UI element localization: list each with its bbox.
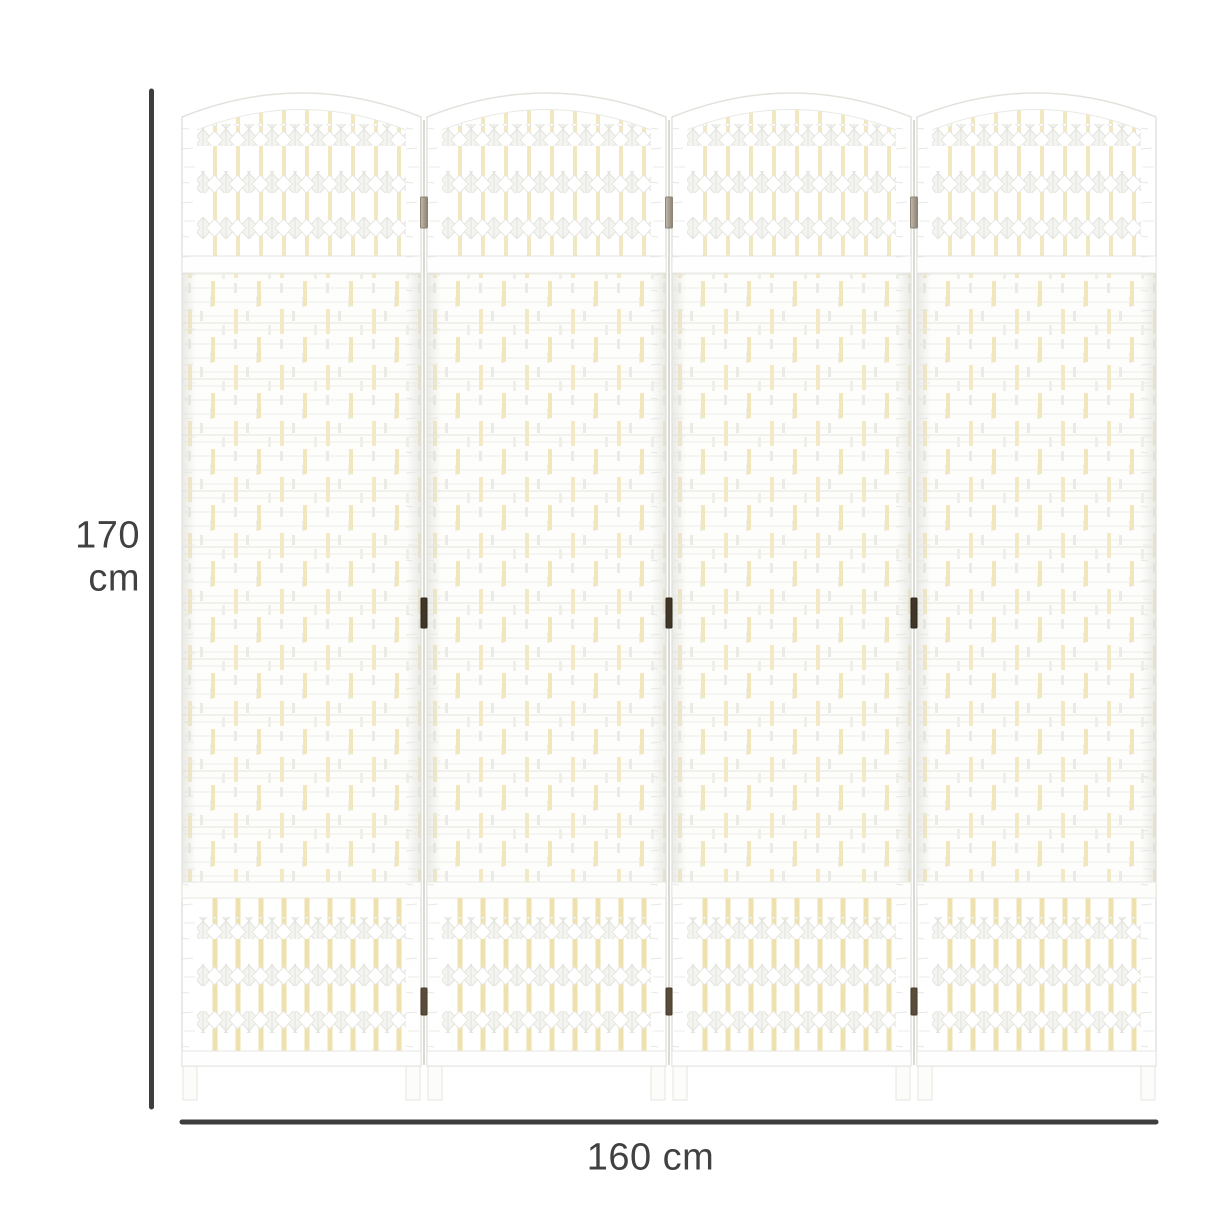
room-divider-illustration	[0, 0, 1214, 1214]
width-dimension-label: 160 cm	[560, 1137, 741, 1180]
panel-gap-line	[668, 120, 670, 1065]
hinge-bottom-icon	[911, 988, 917, 1015]
hinge-middle-icon	[421, 598, 427, 628]
divider-panel-2	[427, 89, 666, 1100]
divider-panel-1	[182, 89, 421, 1100]
hinge-middle-icon	[911, 598, 917, 628]
hinge-top-icon	[666, 197, 673, 228]
hinge-bottom-icon	[421, 988, 427, 1015]
hinge-top-icon	[421, 197, 428, 228]
hinge-bottom-icon	[666, 988, 672, 1015]
product-dimension-figure: 170 cm 160 cm	[0, 0, 1214, 1214]
divider-panel-4	[917, 89, 1156, 1100]
panel-gap-line	[423, 120, 425, 1065]
divider-panel-3	[672, 89, 911, 1100]
panel-gap-line	[913, 120, 915, 1065]
hinge-middle-icon	[666, 598, 672, 628]
height-dimension-label: 170 cm	[20, 514, 140, 600]
hinge-top-icon	[911, 197, 918, 228]
